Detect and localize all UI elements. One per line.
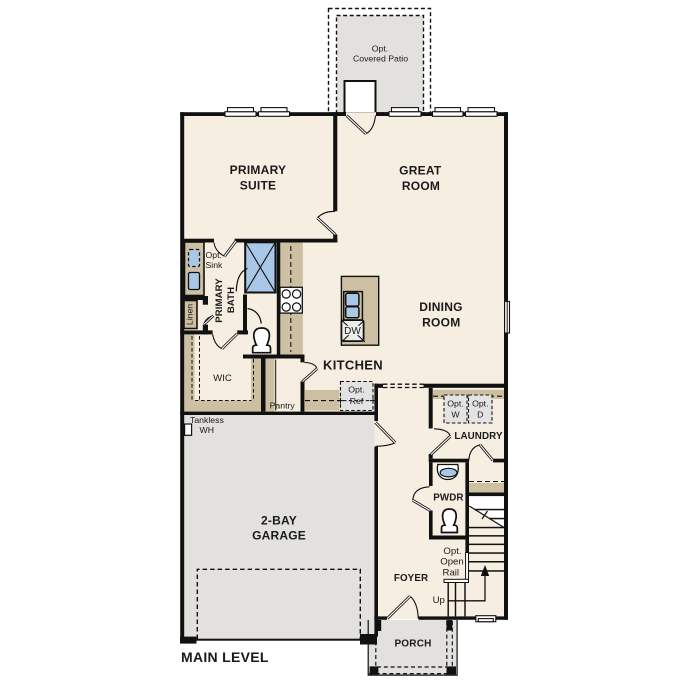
svg-text:Linen: Linen bbox=[185, 304, 195, 325]
svg-text:GARAGE: GARAGE bbox=[252, 529, 306, 543]
svg-text:GREAT: GREAT bbox=[399, 164, 442, 178]
svg-text:W: W bbox=[451, 410, 460, 420]
svg-text:Sink: Sink bbox=[206, 260, 224, 270]
svg-text:DINING: DINING bbox=[419, 300, 463, 314]
svg-text:MAIN LEVEL: MAIN LEVEL bbox=[181, 649, 269, 665]
svg-text:Opt.: Opt. bbox=[206, 250, 222, 260]
svg-text:PRIMARY: PRIMARY bbox=[230, 163, 287, 177]
svg-text:Open: Open bbox=[440, 557, 463, 568]
svg-text:Tankless: Tankless bbox=[190, 415, 224, 425]
svg-text:2-BAY: 2-BAY bbox=[261, 513, 297, 527]
svg-text:Rail: Rail bbox=[443, 567, 460, 578]
svg-text:PRIMARY: PRIMARY bbox=[214, 278, 225, 323]
svg-text:Opt.: Opt. bbox=[372, 44, 388, 54]
svg-text:DW: DW bbox=[344, 326, 361, 337]
svg-text:Covered Patio: Covered Patio bbox=[353, 54, 408, 64]
svg-text:WIC: WIC bbox=[213, 373, 232, 384]
svg-text:Opt.: Opt. bbox=[348, 384, 364, 394]
svg-text:LAUNDRY: LAUNDRY bbox=[454, 431, 503, 442]
svg-text:BATH: BATH bbox=[226, 287, 237, 313]
svg-text:Pantry: Pantry bbox=[270, 401, 296, 411]
svg-text:ROOM: ROOM bbox=[402, 179, 440, 193]
svg-text:Opt.: Opt. bbox=[472, 399, 488, 409]
svg-text:D: D bbox=[477, 410, 483, 420]
svg-text:PORCH: PORCH bbox=[394, 639, 431, 650]
svg-text:Opt.: Opt. bbox=[447, 399, 463, 409]
svg-text:ROOM: ROOM bbox=[422, 316, 460, 330]
svg-text:WH: WH bbox=[200, 425, 214, 435]
svg-text:PWDR: PWDR bbox=[433, 492, 463, 503]
svg-text:Up: Up bbox=[433, 595, 445, 606]
svg-text:Ref: Ref bbox=[350, 396, 364, 406]
svg-text:SUITE: SUITE bbox=[240, 179, 277, 193]
svg-text:Opt.: Opt. bbox=[443, 546, 461, 557]
svg-text:FOYER: FOYER bbox=[394, 573, 428, 584]
svg-text:KITCHEN: KITCHEN bbox=[323, 357, 383, 372]
